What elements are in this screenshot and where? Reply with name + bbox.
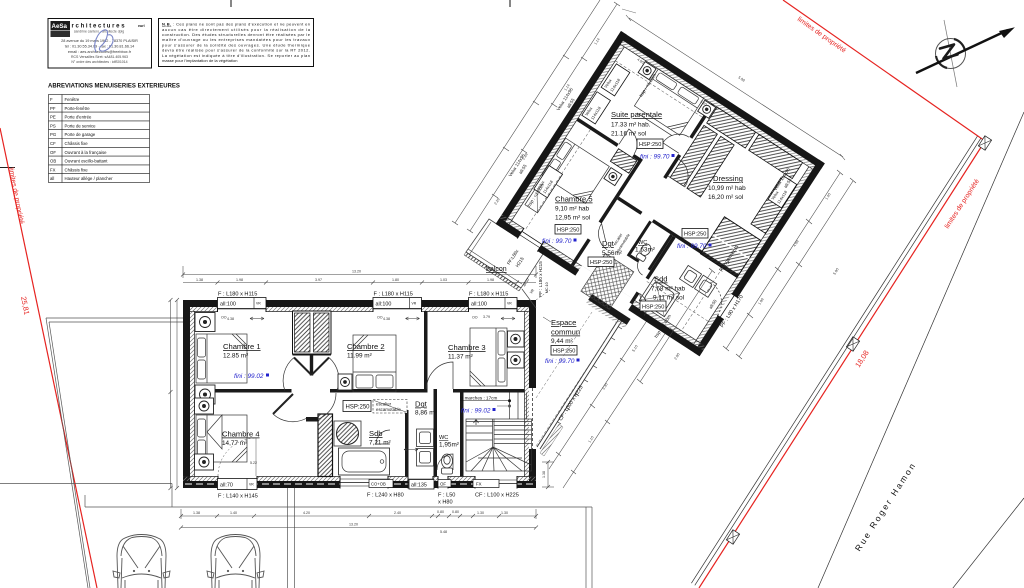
svg-text:WC: WC [638, 240, 647, 246]
svg-text:4.20: 4.20 [303, 511, 310, 515]
svg-text:all:100: all:100 [471, 302, 487, 308]
svg-text:FX: FX [50, 167, 56, 172]
svg-text:F : L240 x H80: F : L240 x H80 [367, 493, 404, 499]
svg-text:eurl: eurl [138, 24, 145, 28]
svg-text:Chambre 4: Chambre 4 [222, 430, 260, 439]
svg-text:Chambre 1: Chambre 1 [223, 342, 261, 351]
svg-text:H marches : 17cm: H marches : 17cm [460, 396, 497, 401]
svg-text:Chambre 2: Chambre 2 [347, 342, 385, 351]
svg-text:fini : 99.70: fini : 99.70 [542, 238, 572, 245]
svg-text:17.33 m² hab.: 17.33 m² hab. [611, 122, 651, 129]
svg-text:HSP:250: HSP:250 [684, 232, 706, 238]
svg-text:0.80: 0.80 [452, 510, 459, 514]
svg-text:N° ordre des architectes : idf: N° ordre des architectes : idfS01014 [71, 60, 127, 64]
svg-text:9,44 m²: 9,44 m² [551, 338, 573, 345]
svg-text:VR: VR [249, 483, 254, 487]
svg-text:HSP:250: HSP:250 [639, 142, 661, 148]
svg-text:VR: VR [507, 302, 512, 306]
svg-text:VR: VR [412, 302, 417, 306]
svg-text:Châssis fixe: Châssis fixe [65, 167, 89, 172]
svg-text:12,95 m² sol: 12,95 m² sol [555, 215, 590, 222]
svg-text:Chambre 3: Chambre 3 [448, 343, 486, 352]
svg-text:7,68 m³ hab: 7,68 m³ hab [651, 286, 686, 293]
svg-text:Hauteur allège / plancher: Hauteur allège / plancher [65, 176, 114, 181]
svg-text:F : L180 x H115: F : L180 x H115 [469, 292, 508, 298]
svg-text:x H80: x H80 [438, 500, 453, 506]
svg-text:escamotable: escamotable [376, 407, 401, 412]
svg-text:PS: PS [50, 123, 56, 128]
svg-text:Dgt: Dgt [415, 400, 428, 409]
svg-text:11.99 m²: 11.99 m² [347, 353, 372, 360]
svg-text:1.38: 1.38 [542, 471, 546, 478]
svg-text:Porte d'entrée: Porte d'entrée [65, 115, 92, 120]
svg-text:HSP:250: HSP:250 [557, 228, 579, 234]
svg-text:fini : 99.70: fini : 99.70 [640, 154, 670, 161]
svg-text:fini : 99.70: fini : 99.70 [545, 358, 575, 365]
svg-text:5.22: 5.22 [250, 461, 257, 465]
svg-text:OB: OB [50, 159, 56, 164]
svg-text:1,95m²: 1,95m² [439, 442, 459, 449]
svg-text:4.38: 4.38 [383, 317, 390, 321]
svg-text:13.20: 13.20 [352, 270, 361, 274]
svg-text:1.40: 1.40 [230, 511, 237, 515]
svg-text:OF: OF [440, 482, 446, 487]
svg-text:HSP:250: HSP:250 [642, 305, 664, 311]
svg-text:4.38: 4.38 [227, 317, 234, 321]
svg-text:9,10 m² hab: 9,10 m² hab [555, 206, 590, 213]
svg-text:commun: commun [551, 328, 580, 337]
svg-text:Sdd: Sdd [654, 275, 668, 284]
svg-text:balcon: balcon [486, 266, 507, 273]
svg-text:Porte de service: Porte de service [65, 123, 97, 128]
svg-text:Châssis fixe: Châssis fixe [65, 141, 89, 146]
svg-text:OO: OO [377, 316, 383, 320]
svg-text:Porte de garage: Porte de garage [65, 132, 96, 137]
svg-text:Sdb: Sdb [369, 429, 383, 438]
svg-text:1.30: 1.30 [477, 511, 484, 515]
svg-text:fini : 99.70: fini : 99.70 [677, 243, 707, 250]
svg-text:Ouvrant à la française: Ouvrant à la française [65, 150, 108, 155]
svg-text:3.97: 3.97 [315, 278, 322, 282]
svg-text:3.79: 3.79 [483, 315, 490, 319]
svg-text:OO: OO [472, 316, 478, 320]
svg-text:OF: OF [50, 150, 56, 155]
svg-text:1.80: 1.80 [392, 278, 399, 282]
svg-text:F : L180 x H115: F : L180 x H115 [218, 292, 257, 298]
svg-text:all:70: all:70 [220, 483, 233, 489]
svg-text:MC:10: MC:10 [545, 282, 549, 293]
svg-text:Suite parentale: Suite parentale [611, 110, 662, 119]
svg-text:1.98: 1.98 [487, 278, 494, 282]
svg-text:RCS Versailles Siret: sA481.40: RCS Versailles Siret: sA481.405.963 [71, 55, 128, 59]
svg-text:AeSa: AeSa [52, 23, 68, 30]
svg-text:21.16 m² sol: 21.16 m² sol [611, 131, 646, 138]
svg-text:F: F [50, 97, 53, 102]
svg-text:PG: PG [50, 132, 57, 137]
svg-text:1.38: 1.38 [193, 511, 200, 515]
svg-text:PE: PE [50, 115, 56, 120]
svg-text:12.85 m²: 12.85 m² [223, 353, 248, 360]
svg-text:16,20 m² sol: 16,20 m² sol [708, 194, 743, 201]
svg-text:all:100: all:100 [220, 302, 236, 308]
svg-text:5.48: 5.48 [440, 530, 447, 534]
svg-text:F : L50: F : L50 [438, 493, 455, 499]
svg-text:0.80: 0.80 [437, 510, 444, 514]
svg-text:11.37 m²: 11.37 m² [448, 354, 473, 361]
svg-text:CF : L100 x H225: CF : L100 x H225 [475, 493, 519, 499]
svg-text:F : L180 x H115: F : L180 x H115 [374, 292, 413, 298]
svg-text:13.20: 13.20 [349, 523, 358, 527]
svg-text:9,11 m² sol: 9,11 m² sol [653, 295, 684, 302]
svg-text:Ouvrant oscillo-battant: Ouvrant oscillo-battant [65, 159, 109, 164]
svg-text:1.98: 1.98 [236, 278, 243, 282]
svg-text:1.30: 1.30 [501, 511, 508, 515]
svg-text:VR: VR [256, 302, 261, 306]
svg-text:28 avenue du 19 mars 1962 - 78: 28 avenue du 19 mars 1962 - 78370 PLAISI… [61, 39, 138, 43]
svg-text:10,99 m² hab: 10,99 m² hab [708, 185, 746, 192]
svg-text:ABREVIATIONS MENUISERIES EXTER: ABREVIATIONS MENUISERIES EXTERIEURES [48, 84, 180, 90]
svg-text:1,63m²: 1,63m² [635, 247, 655, 254]
svg-text:Fenêtre: Fenêtre [65, 97, 80, 102]
svg-text:WC: WC [439, 435, 448, 441]
svg-text:PF : L180 x H215: PF : L180 x H215 [538, 261, 543, 297]
svg-text:FX: FX [476, 482, 482, 487]
svg-text:fini : 99.02: fini : 99.02 [461, 408, 491, 415]
svg-text:HSP:250: HSP:250 [553, 349, 575, 355]
svg-text:2.40: 2.40 [394, 511, 401, 515]
svg-text:8,86 m²: 8,86 m² [415, 410, 437, 417]
svg-text:HSP:250: HSP:250 [590, 260, 612, 266]
svg-text:all:135: all:135 [411, 483, 427, 489]
svg-text:CO+OB: CO+OB [371, 482, 386, 487]
svg-text:Chambre 5: Chambre 5 [555, 195, 593, 204]
svg-text:CF: CF [50, 141, 56, 146]
svg-text:masse pour l'implantation de l: masse pour l'implantation de la végétati… [162, 58, 237, 63]
svg-text:F : L140 x H145: F : L140 x H145 [218, 494, 258, 500]
svg-text:all: all [50, 176, 54, 181]
svg-text:Porte-fenêtre: Porte-fenêtre [65, 106, 91, 111]
svg-text:all:100: all:100 [376, 302, 392, 308]
svg-text:1.38: 1.38 [196, 278, 203, 282]
svg-text:Dressing: Dressing [713, 174, 743, 183]
svg-text:HSP:250: HSP:250 [346, 405, 371, 411]
svg-text:7,21 m²: 7,21 m² [369, 440, 391, 447]
svg-text:OO: OO [221, 316, 227, 320]
svg-text:1.03: 1.03 [440, 278, 447, 282]
svg-text:Espace: Espace [551, 318, 576, 327]
svg-text:fini : 99.02: fini : 99.02 [234, 373, 264, 380]
svg-text:14,77 m²: 14,77 m² [222, 440, 247, 447]
svg-text:PF: PF [50, 106, 56, 111]
